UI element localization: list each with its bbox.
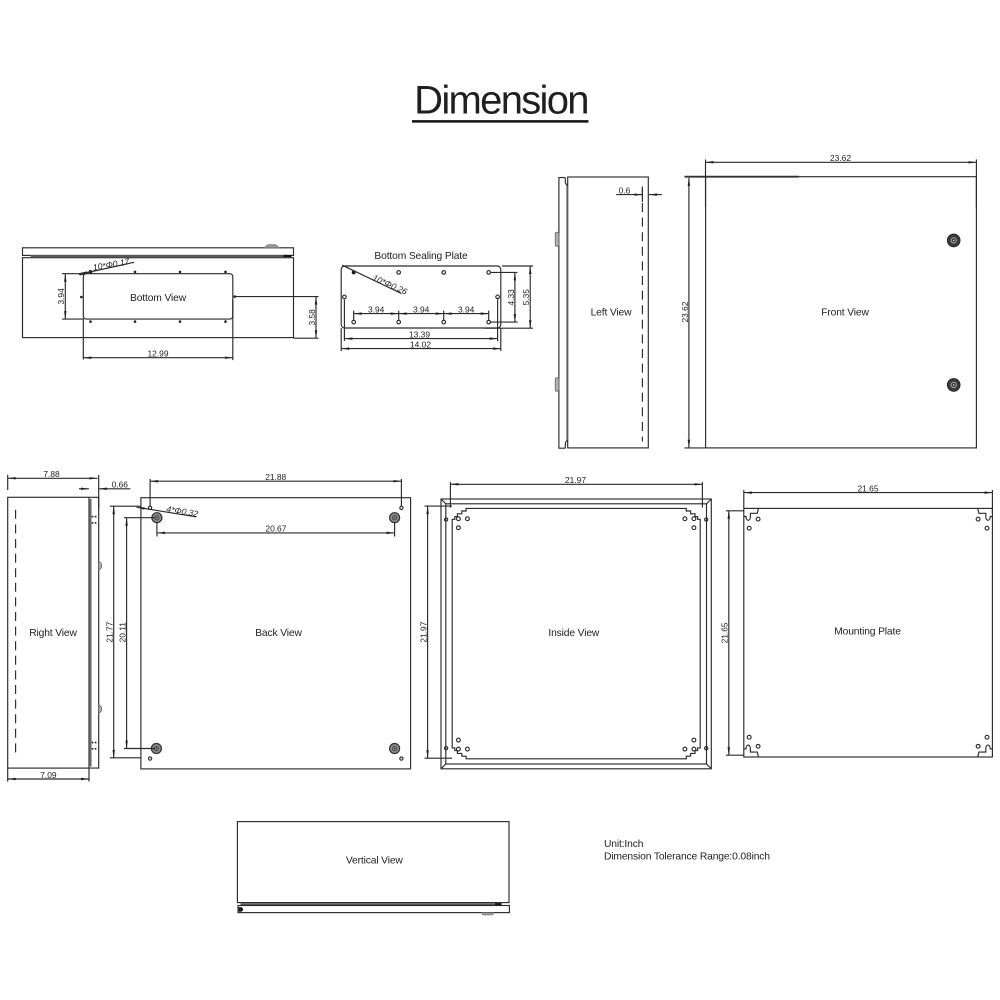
svg-text:0.66: 0.66 [112, 480, 129, 490]
svg-text:20.67: 20.67 [265, 524, 286, 534]
svg-text:0.6: 0.6 [619, 185, 631, 195]
svg-text:Dimension: Dimension [414, 79, 588, 123]
svg-text:4.33: 4.33 [506, 289, 516, 306]
svg-text:21.65: 21.65 [858, 483, 879, 493]
svg-text:Vertical View: Vertical View [346, 855, 404, 866]
svg-text:13.39: 13.39 [409, 329, 430, 339]
svg-text:20.11: 20.11 [118, 622, 128, 643]
svg-text:4*Φ0.32: 4*Φ0.32 [166, 504, 199, 519]
svg-text:Bottom Sealing Plate: Bottom Sealing Plate [374, 251, 468, 262]
svg-text:10*Φ0.26: 10*Φ0.26 [371, 272, 409, 296]
svg-text:21.97: 21.97 [419, 621, 429, 642]
svg-text:12.99: 12.99 [148, 348, 169, 358]
svg-text:Right View: Right View [29, 628, 77, 639]
svg-text:Dimension Tolerance Range:0.08: Dimension Tolerance Range:0.08inch [604, 851, 770, 862]
svg-text:Inside View: Inside View [548, 628, 600, 639]
svg-text:21.88: 21.88 [265, 472, 286, 482]
svg-text:7.09: 7.09 [40, 770, 57, 780]
svg-text:Front View: Front View [821, 307, 869, 318]
svg-text:7.88: 7.88 [43, 469, 60, 479]
svg-text:14.02: 14.02 [410, 339, 431, 349]
svg-text:23.62: 23.62 [680, 301, 690, 322]
svg-text:10*Φ0.17: 10*Φ0.17 [92, 256, 131, 272]
svg-text:Left View: Left View [591, 307, 633, 318]
svg-text:Bottom View: Bottom View [130, 293, 187, 304]
svg-text:3.94: 3.94 [413, 304, 430, 314]
svg-text:Mounting Plate: Mounting Plate [834, 627, 901, 638]
svg-text:3.94: 3.94 [368, 304, 385, 314]
svg-text:3.94: 3.94 [458, 304, 475, 314]
svg-text:21.77: 21.77 [105, 621, 115, 642]
svg-text:21.97: 21.97 [565, 475, 586, 485]
svg-text:3.94: 3.94 [56, 288, 66, 305]
svg-text:3.58: 3.58 [307, 309, 317, 326]
svg-text:Unit:Inch: Unit:Inch [604, 839, 644, 850]
svg-text:21.65: 21.65 [720, 622, 730, 643]
svg-text:Back View: Back View [255, 628, 302, 639]
svg-text:23.62: 23.62 [830, 153, 851, 163]
svg-text:5.35: 5.35 [521, 289, 531, 306]
